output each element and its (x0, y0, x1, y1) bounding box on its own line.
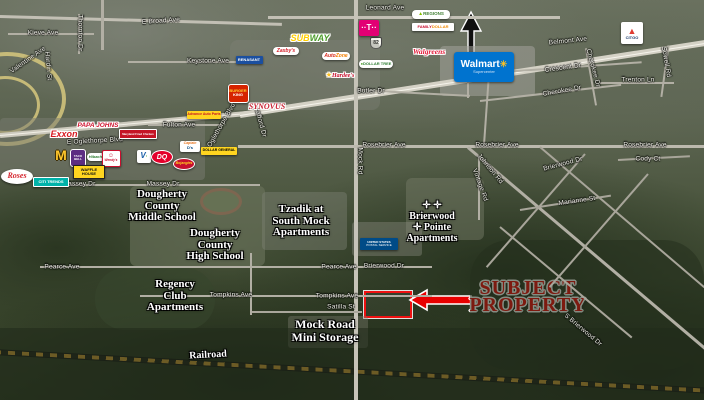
dairy-queen-text: DQ (157, 154, 168, 161)
walgreens-logo: Walgreens (407, 47, 451, 57)
road (101, 0, 104, 50)
street-label: Belmont Ave (548, 36, 587, 47)
street-label: Pearce Ave (321, 264, 356, 271)
usps-logo: UNITED STATESPOSTAL SERVICE (360, 238, 398, 250)
subway-text-span: SUB (291, 34, 310, 43)
citi-trends-logo: CITI TRENDS (33, 177, 69, 187)
walmart-text-span: Supercenter (473, 70, 495, 74)
mock-road-mini-storage: Mock RoadMini Storage (292, 318, 359, 344)
exxon-text-span: Exxon (50, 130, 77, 139)
dairy-queen-text-span: DQ (157, 154, 168, 161)
mcdonalds-text: M (55, 148, 67, 162)
autozone-text: AutoZone (324, 54, 347, 59)
aerial-map: SUBJECT PROPERTY 82 E Broad AveLeonard A… (0, 0, 704, 400)
street-label: E Broad Ave (142, 16, 181, 26)
advance-auto-parts-text-span: Advance Auto Parts (187, 113, 220, 117)
synovus-logo: SYNOVUS (243, 102, 291, 113)
dougherty-county-high-school-line: Dougherty (186, 228, 243, 240)
regions-bank-text: ▲ REGIONS (418, 12, 444, 17)
street-label: Cherokee Dr (585, 48, 602, 88)
walgreens-text: Walgreens (413, 48, 445, 56)
road (250, 311, 362, 313)
mcdonalds-logo: M (52, 146, 70, 164)
family-dollar-text-span: FAMILY (418, 25, 432, 29)
v-bank-text: V· (140, 152, 147, 160)
walgreens-text-span: Walgreens (413, 48, 445, 56)
street-label: Tompkins Ave (316, 293, 358, 300)
v-bank-logo: V· (137, 150, 151, 163)
dougherty-county-high-school-line: High School (186, 251, 243, 263)
street-label: Keystone Ave (187, 58, 229, 65)
zaxbys-text: Zaxby's (277, 49, 295, 54)
zaxbys-logo: Zaxby's (273, 47, 299, 55)
street-label: Satilla St (327, 304, 355, 311)
street-label: Fulton Ave (163, 122, 196, 129)
citi-trends-text: CITI TRENDS (38, 180, 63, 184)
street-label: Kieve Ave (28, 30, 59, 37)
t-mobile-logo: ··T·· (359, 20, 379, 36)
subway-text-span: WAY (310, 34, 330, 43)
street-label: Rosebrier Ave (623, 142, 666, 149)
dollar-tree-logo: ● DOLLAR TREE (359, 60, 393, 68)
street-label: Leonard Ave (366, 5, 405, 12)
renasant-bank-text-span: RENASANT (238, 58, 260, 62)
wendys-text-span: Wendy's (105, 159, 118, 162)
maryland-fried-chicken-text-span: Maryland Fried Chicken (122, 133, 154, 136)
roses-text-span: Roses (7, 172, 26, 180)
captain-ds-logo: CaptainD's (180, 141, 200, 152)
dollar-general-text: DOLLAR GENERAL (203, 149, 236, 153)
renasant-bank-text: RENASANT (238, 58, 260, 62)
street-label: Cody Ct (636, 156, 661, 163)
street-label: Marianne St (558, 195, 596, 207)
usps-text: POSTAL SERVICE (366, 244, 391, 247)
tzadik-at-south-mock-apartments-line: Tzadik at (272, 204, 329, 216)
regency-club-apartments-line: Regency (147, 279, 203, 291)
advance-auto-parts-logo: Advance Auto Parts (187, 111, 221, 119)
bojangles-text: Bojangles (176, 162, 193, 166)
maryland-fried-chicken-logo: Maryland Fried Chicken (119, 129, 157, 139)
autozone-logo: AutoZone (322, 52, 350, 60)
walmart-text-span: ✳ (500, 60, 508, 69)
dollar-general-logo: DOLLAR GENERAL (201, 147, 237, 155)
family-dollar-text: FAMILY DOLLAR (418, 25, 449, 29)
walmart-text: Supercenter (473, 70, 495, 74)
regions-bank-logo: ▲ REGIONS (412, 10, 450, 19)
brierwood-pointe-apartments-line: Apartments (406, 233, 457, 244)
exxon-text: Exxon (50, 130, 77, 139)
walmart-logo: Walmart✳Supercenter (454, 52, 514, 82)
captain-ds-text-span: D's (187, 146, 193, 150)
citgo-logo: ▲CITGO (621, 22, 643, 44)
waffle-house-text: HOUSE (82, 172, 96, 176)
v-bank-text-span: · (146, 154, 148, 160)
subway-text: SUBWAY (291, 34, 330, 43)
bojangles-logo: Bojangles (173, 158, 195, 170)
street-label: Tompkins Ave (210, 292, 252, 299)
autozone-text-span: Zone (336, 54, 348, 59)
dougherty-county-middle-school-line: Dougherty (128, 189, 196, 201)
t-mobile-text: ··T·· (361, 24, 377, 32)
citgo-text-span: CITGO (626, 36, 639, 40)
street-label: Rosebrier Ave (475, 142, 518, 149)
regency-club-apartments: RegencyClubApartments (147, 279, 203, 314)
captain-ds-text: D's (187, 146, 193, 150)
dairy-queen-logo: DQ (151, 150, 173, 164)
citi-trends-text-span: CITI TRENDS (38, 180, 63, 184)
usps-text-span: POSTAL SERVICE (366, 244, 391, 247)
taco-bell-text-span: BELL (74, 158, 82, 161)
road (250, 253, 252, 315)
bojangles-text-span: Bojangles (176, 162, 193, 166)
taco-bell-text: BELL (74, 158, 82, 161)
street-label: Hardin St (43, 51, 52, 80)
regency-club-apartments-line: Apartments (147, 302, 203, 314)
papa-johns-logo: PAPA JOHNS (76, 121, 120, 131)
street-label: Butler Dr (357, 88, 384, 95)
citgo-text: CITGO (626, 36, 639, 40)
renasant-bank-logo: RENASANT (236, 56, 263, 64)
family-dollar-text-span: DOLLAR (432, 25, 449, 29)
railroad-label: Railroad (189, 349, 227, 362)
wendys-text: Wendy's (105, 159, 118, 162)
street-label: Mock Rd (357, 147, 364, 174)
hardees-text: ★Hardee's (326, 72, 355, 79)
dougherty-county-middle-school: DoughertyCountyMiddle School (128, 189, 196, 224)
brierwood-pointe-apartments-line: ✛ ✛ (406, 200, 457, 211)
dougherty-county-high-school: DoughertyCountyHigh School (186, 228, 243, 263)
subway-logo: SUBWAY (288, 33, 332, 44)
street-label: Pearce Ave (44, 264, 79, 271)
regions-bank-text-span: REGIONS (423, 12, 444, 17)
zaxbys-text-span: Zaxby's (277, 49, 295, 54)
tzadik-at-south-mock-apartments: Tzadik atSouth MockApartments (272, 204, 329, 239)
street-label: Rosebrier Ave (362, 142, 405, 149)
brierwood-pointe-apartments-line: Brierwood (406, 211, 457, 222)
dollar-tree-text-span: DOLLAR TREE (363, 62, 391, 66)
exxon-logo: Exxon (47, 128, 81, 140)
tzadik-at-south-mock-apartments-line: Apartments (272, 227, 329, 239)
waffle-house-text-span: HOUSE (82, 172, 96, 176)
hardees-text-span: Hardee's (332, 73, 354, 79)
street-label: Massey Dr (147, 181, 180, 188)
dollar-tree-text: ● DOLLAR TREE (361, 62, 392, 66)
wendys-logo: ☺Wendy's (102, 150, 121, 167)
t-mobile-text-span: ··T·· (361, 24, 377, 32)
street-label: Trenton Ln (621, 77, 654, 84)
brierwood-pointe-apartments: ✛ ✛Brierwood✛ PointeApartments (406, 200, 457, 244)
railroad-label-line: Railroad (189, 349, 227, 362)
mock-road-mini-storage-line: Mini Storage (292, 331, 359, 344)
maryland-fried-chicken-text: Maryland Fried Chicken (122, 133, 154, 136)
burger-king-text-span: KING (233, 93, 243, 97)
waffle-house-logo: WAFFLEHOUSE (73, 165, 105, 179)
roses-logo: Roses (1, 169, 33, 184)
synovus-text-span: SYNOVUS (249, 103, 285, 111)
roses-text: Roses (7, 172, 26, 180)
street-label: Brierwood Dr (364, 263, 404, 270)
dougherty-county-middle-school-line: Middle School (128, 212, 196, 224)
family-dollar-logo: FAMILY DOLLAR (412, 23, 454, 31)
papa-johns-text: PAPA JOHNS (77, 123, 118, 130)
burger-king-logo: BURGERKING (228, 84, 249, 103)
dollar-general-text-span: DOLLAR GENERAL (203, 149, 236, 153)
street-label: Cherokee Dr (542, 84, 582, 98)
papa-johns-text-span: PAPA JOHNS (77, 123, 118, 130)
advance-auto-parts-text: Advance Auto Parts (187, 113, 220, 117)
hardees-logo: ★Hardee's (325, 71, 355, 80)
brierwood-pointe-apartments-line: ✛ Pointe (406, 222, 457, 233)
burger-king-text: KING (233, 93, 243, 97)
mcdonalds-text-span: M (55, 148, 67, 162)
synovus-text: SYNOVUS (249, 103, 285, 111)
street-label: Thornton Dr (77, 15, 84, 52)
autozone-text-span: Auto (324, 54, 335, 59)
